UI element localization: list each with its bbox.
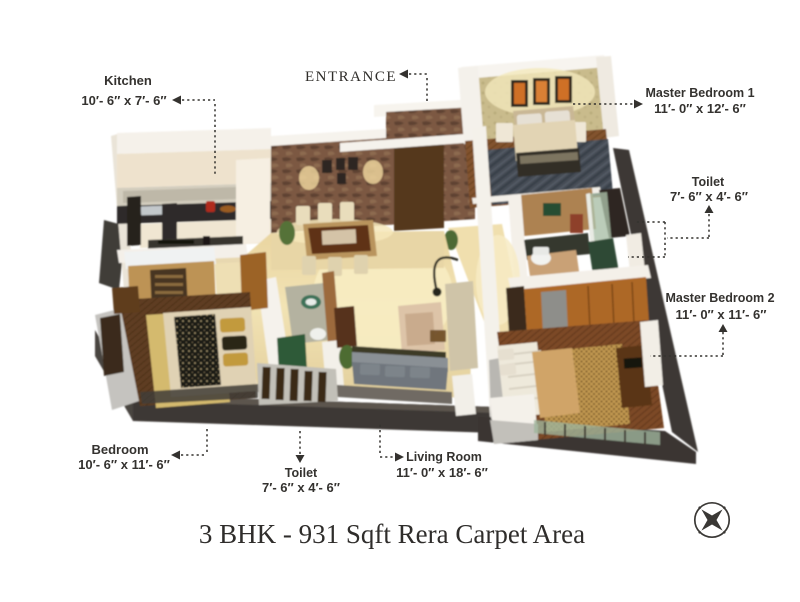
svg-text:Kitchen: Kitchen <box>104 73 152 88</box>
svg-text:Bedroom: Bedroom <box>91 442 148 457</box>
svg-text:7′- 6″ x 4′- 6″: 7′- 6″ x 4′- 6″ <box>262 480 340 495</box>
svg-text:Master Bedroom 1: Master Bedroom 1 <box>645 86 754 100</box>
svg-text:7′- 6″ x 4′- 6″: 7′- 6″ x 4′- 6″ <box>670 189 748 204</box>
svg-text:11′- 0″ x 18′- 6″: 11′- 0″ x 18′- 6″ <box>396 465 488 480</box>
svg-text:10′- 6″ x 11′- 6″: 10′- 6″ x 11′- 6″ <box>78 457 170 472</box>
svg-text:3 BHK - 931 Sqft Rera Carpet A: 3 BHK - 931 Sqft Rera Carpet Area <box>199 519 585 549</box>
svg-text:11′- 0″ x 12′- 6″: 11′- 0″ x 12′- 6″ <box>654 101 746 116</box>
svg-text:11′- 0″ x 11′- 6″: 11′- 0″ x 11′- 6″ <box>676 307 767 322</box>
svg-text:Toilet: Toilet <box>692 175 725 189</box>
svg-text:Living Room: Living Room <box>406 450 482 464</box>
svg-text:10′- 6″ x 7′- 6″: 10′- 6″ x 7′- 6″ <box>81 93 166 108</box>
svg-text:ENTRANCE: ENTRANCE <box>305 69 397 85</box>
svg-text:Toilet: Toilet <box>285 466 318 480</box>
svg-text:Master Bedroom 2: Master Bedroom 2 <box>665 291 774 305</box>
